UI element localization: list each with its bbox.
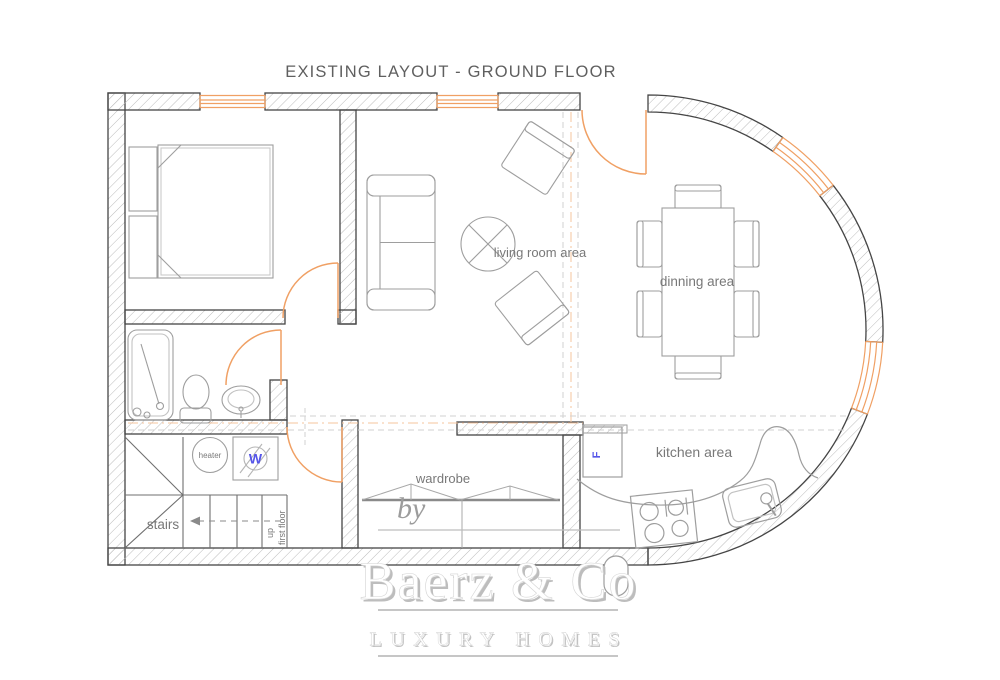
wall-top-a [108, 93, 200, 110]
floor-plan-drawing: EXISTING LAYOUT - GROUND FLOOR [0, 0, 1000, 680]
wall-bedroom-bottom [125, 310, 285, 324]
armchair [494, 270, 570, 346]
watermark: by Baerz & Co Baerz & Co LUXURY HOMES LU… [360, 492, 640, 656]
washing-machine-label: W [249, 451, 263, 467]
entry-door [582, 110, 646, 174]
stairs-label: stairs [147, 517, 180, 532]
wall-hall-right-lower [342, 420, 358, 548]
wall-bedroom-bottom-corner [338, 310, 356, 324]
stairs-up-label: up [265, 528, 275, 538]
walls [108, 93, 883, 565]
fridge-label: F [591, 451, 603, 458]
wardrobe-label: wardrobe [415, 471, 470, 486]
dining-chair [637, 291, 662, 337]
living-room-label: living room area [494, 245, 587, 260]
toilet [180, 375, 211, 423]
watermark-brand: Baerz & Co [360, 551, 638, 611]
wall-bathroom-bottom [125, 420, 287, 434]
window-curve-right [852, 341, 883, 414]
bathroom-door [226, 330, 281, 385]
armchair [501, 121, 576, 196]
heater-label: heater [199, 451, 222, 460]
nightstand [129, 216, 157, 278]
floor-plan-sheet: EXISTING LAYOUT - GROUND FLOOR [0, 0, 1000, 680]
sofa [367, 175, 435, 310]
wall-wardrobe-top [457, 422, 583, 435]
page-title: EXISTING LAYOUT - GROUND FLOOR [285, 63, 617, 81]
watermark-by: by [397, 492, 426, 525]
stove [630, 490, 697, 548]
wall-top-c [498, 93, 580, 110]
window-living [437, 96, 498, 108]
nightstand [129, 147, 157, 211]
wall-wardrobe-right [563, 435, 580, 548]
curved-wall-middle [820, 185, 883, 342]
wall-bathroom-right [270, 380, 287, 420]
dining-chair [734, 291, 759, 337]
wall-left [108, 93, 125, 565]
bathroom [128, 330, 260, 423]
dining-chair [675, 185, 721, 210]
wardrobe-unit [362, 484, 560, 548]
stairs-door [287, 427, 342, 482]
wall-fridge-back [583, 425, 627, 433]
coffee-table [461, 217, 515, 271]
kitchen-area-label: kitchen area [656, 444, 732, 460]
stairs-first-floor-label: first floor [277, 510, 287, 545]
living-room [367, 121, 575, 346]
bedroom-door [283, 263, 338, 318]
bathtub [128, 330, 173, 420]
double-bed [158, 145, 273, 278]
dining-chair [734, 221, 759, 267]
wall-top-b [265, 93, 437, 110]
window-curve-upper [773, 138, 833, 196]
window-bedroom [200, 96, 265, 108]
dining-area-label: dinning area [660, 274, 735, 289]
curved-wall-upper [648, 95, 783, 151]
kitchen-counter [577, 427, 818, 505]
stairs-walk-line [190, 517, 280, 526]
wall-bedroom-right [340, 110, 356, 324]
dining-chair [637, 221, 662, 267]
bedroom [129, 145, 273, 278]
dining-chair [675, 354, 721, 379]
watermark-tagline: LUXURY HOMES [369, 629, 628, 651]
washbasin [222, 386, 260, 418]
utility: heater W [193, 437, 279, 480]
